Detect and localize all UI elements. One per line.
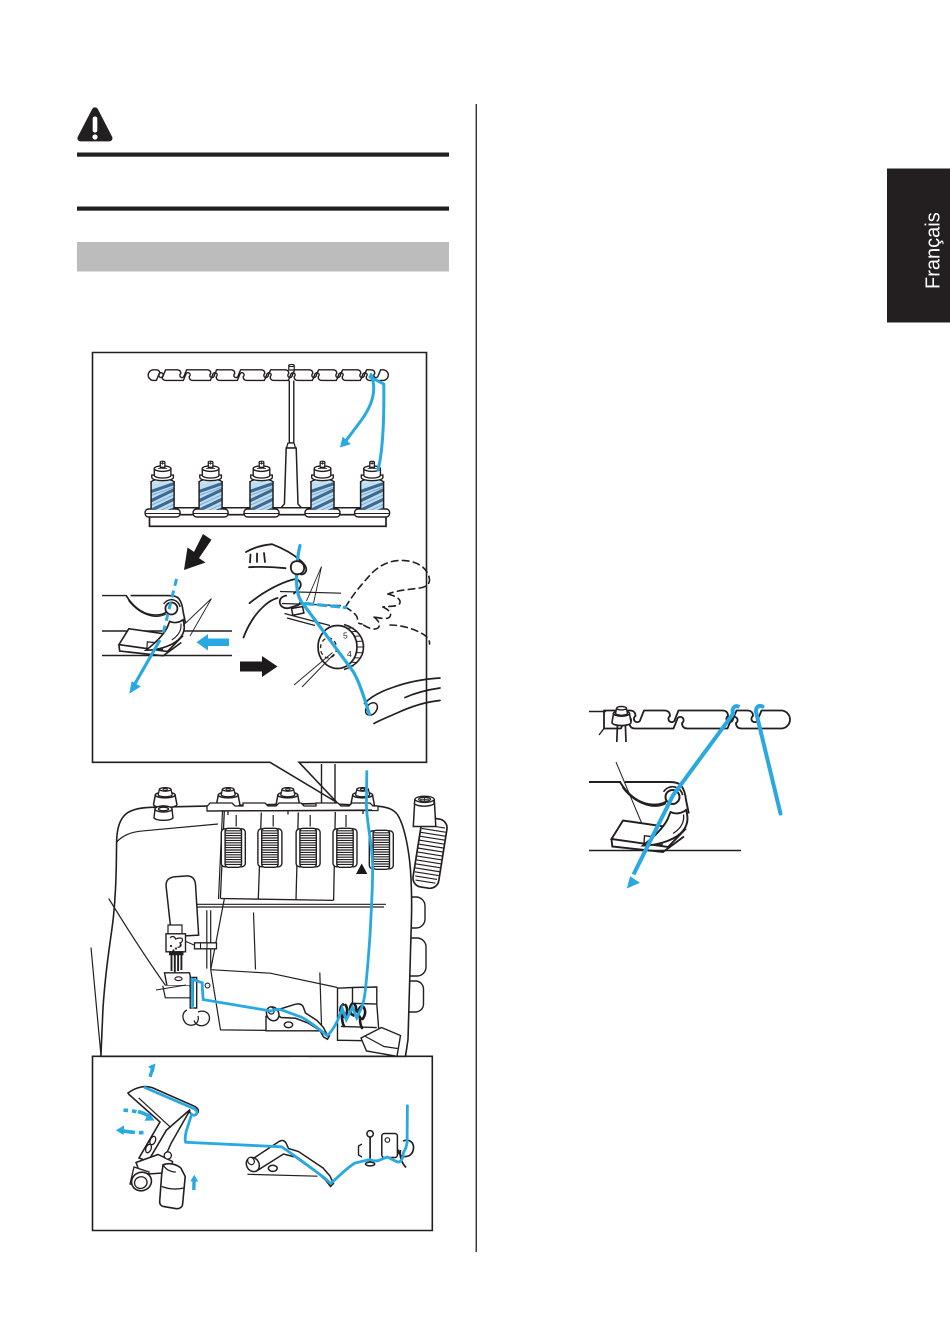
svg-text:4: 4 [347,649,352,659]
svg-text:Français: Français [923,212,945,289]
svg-text:5: 5 [343,631,348,641]
